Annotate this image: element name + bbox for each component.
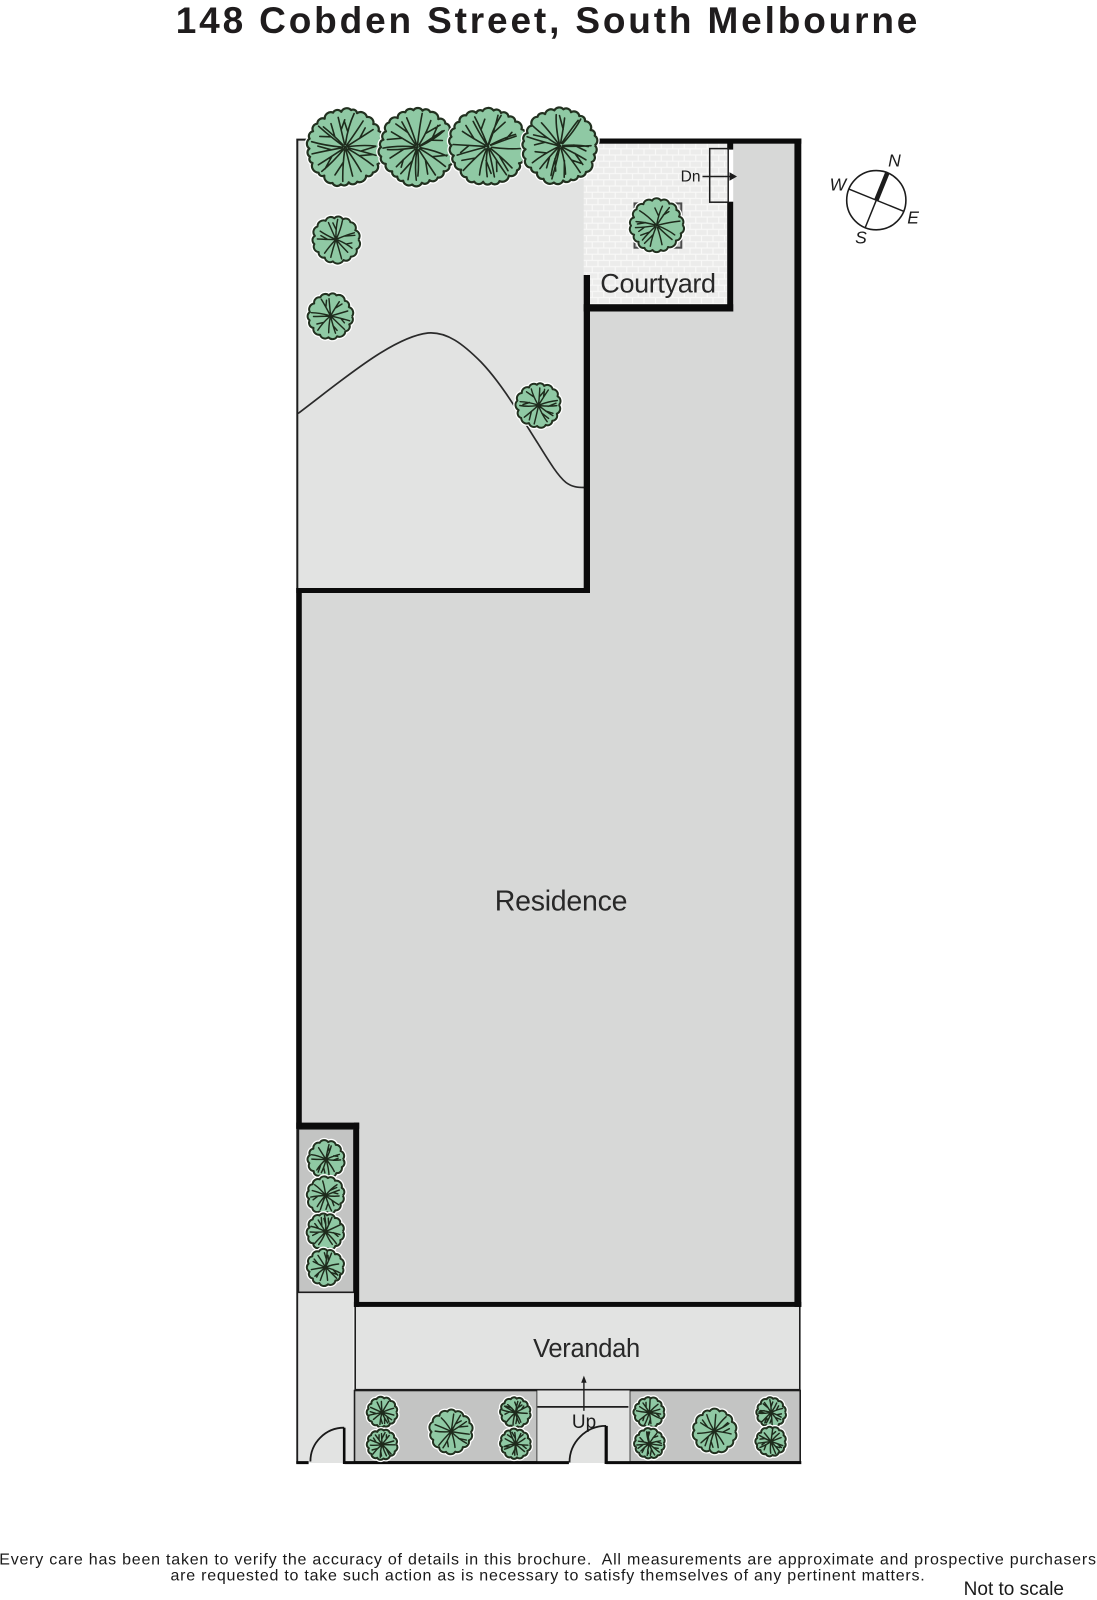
svg-text:Dn: Dn — [681, 169, 701, 186]
svg-text:Every care has been taken to v: Every care has been taken to verify the … — [0, 1552, 1097, 1569]
svg-text:E: E — [907, 207, 919, 227]
svg-text:Residence: Residence — [495, 885, 627, 917]
svg-text:W: W — [830, 174, 848, 194]
svg-text:are requested to take such act: are requested to take such action as is … — [171, 1567, 926, 1584]
svg-text:Verandah: Verandah — [533, 1335, 640, 1363]
svg-text:148 Cobden Street, South Melbo: 148 Cobden Street, South Melbourne — [176, 0, 920, 41]
svg-text:Not to scale: Not to scale — [964, 1579, 1064, 1600]
svg-text:N: N — [888, 151, 901, 171]
svg-text:Courtyard: Courtyard — [600, 268, 715, 298]
svg-text:S: S — [855, 228, 867, 248]
svg-text:Up: Up — [572, 1412, 596, 1433]
